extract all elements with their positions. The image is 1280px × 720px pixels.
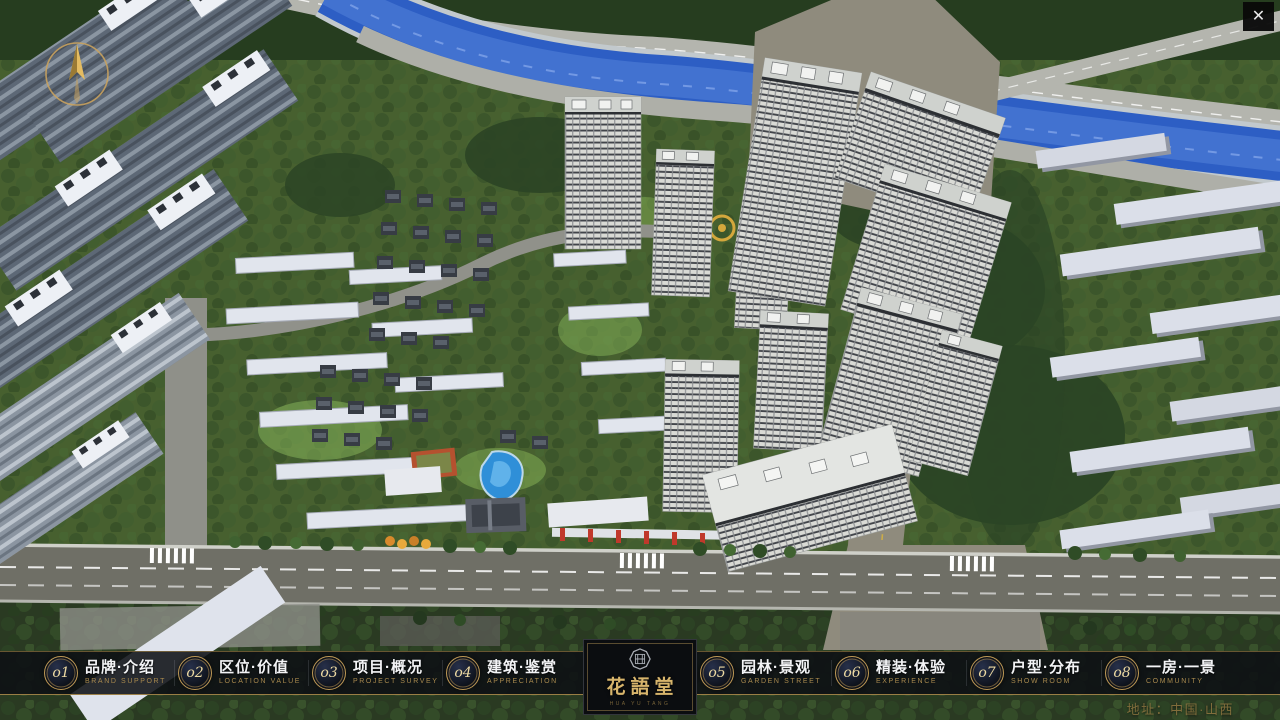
seal-emblem-icon	[629, 648, 651, 670]
item-label-zh: 一房·一景	[1146, 660, 1216, 677]
menu-item-2[interactable]: o2 区位·价值 LOCATION VALUE	[178, 652, 312, 694]
item-badge: o1	[44, 656, 78, 690]
item-label-zh: 园林·景观	[741, 660, 821, 677]
app-window: ✕ o1 品牌·介绍 BRAND SUPPORT o2 区位·价值 LOCATI…	[0, 0, 1280, 720]
item-label-zh: 项目·概况	[353, 660, 439, 677]
item-label-en: SHOW ROOM	[1011, 678, 1081, 686]
map-viewport[interactable]	[0, 0, 1280, 720]
close-button[interactable]: ✕	[1243, 2, 1274, 31]
item-badge: o3	[312, 656, 346, 690]
item-label-en: LOCATION VALUE	[219, 678, 301, 686]
item-label-en: APPRECIATION	[487, 678, 558, 686]
item-badge: o8	[1105, 656, 1139, 690]
project-logo-name: 花語堂	[606, 672, 678, 699]
item-badge: o4	[446, 656, 480, 690]
menu-item-3[interactable]: o3 项目·概况 PROJECT SURVEY	[312, 652, 446, 694]
item-label-zh: 区位·价值	[219, 660, 301, 677]
menu-item-4[interactable]: o4 建筑·鉴赏 APPRECIATION	[446, 652, 580, 694]
item-badge: o2	[178, 656, 212, 690]
menu-item-1[interactable]: o1 品牌·介绍 BRAND SUPPORT	[44, 652, 178, 694]
menu-group-left: o1 品牌·介绍 BRAND SUPPORT o2 区位·价值 LOCATION…	[44, 652, 580, 694]
project-logo-panel: 花語堂 HUA YU TANG	[583, 639, 697, 715]
item-label-zh: 户型·分布	[1011, 660, 1081, 677]
menu-item-7[interactable]: o7 户型·分布 SHOW ROOM	[970, 652, 1105, 694]
item-label-zh: 精装·体验	[876, 660, 946, 677]
project-logo-tagline: HUA YU TANG	[610, 701, 671, 707]
item-label-en: GARDEN STREET	[741, 678, 821, 686]
item-badge: o6	[835, 656, 869, 690]
item-label-zh: 品牌·介绍	[85, 660, 166, 677]
item-label-en: EXPERIENCE	[876, 678, 946, 686]
compass-north-icon	[38, 34, 116, 112]
item-badge: o5	[700, 656, 734, 690]
item-badge: o7	[970, 656, 1004, 690]
menu-item-8[interactable]: o8 一房·一景 COMMUNITY	[1105, 652, 1240, 694]
item-label-en: COMMUNITY	[1146, 678, 1216, 686]
item-label-zh: 建筑·鉴赏	[487, 660, 558, 677]
project-address: 地址：中国·山西	[1127, 699, 1234, 718]
item-label-en: BRAND SUPPORT	[85, 678, 166, 686]
menu-group-right: o5 园林·景观 GARDEN STREET o6 精装·体验 EXPERIEN…	[700, 652, 1240, 694]
menu-item-6[interactable]: o6 精装·体验 EXPERIENCE	[835, 652, 970, 694]
menu-item-5[interactable]: o5 园林·景观 GARDEN STREET	[700, 652, 835, 694]
item-label-en: PROJECT SURVEY	[353, 678, 439, 686]
